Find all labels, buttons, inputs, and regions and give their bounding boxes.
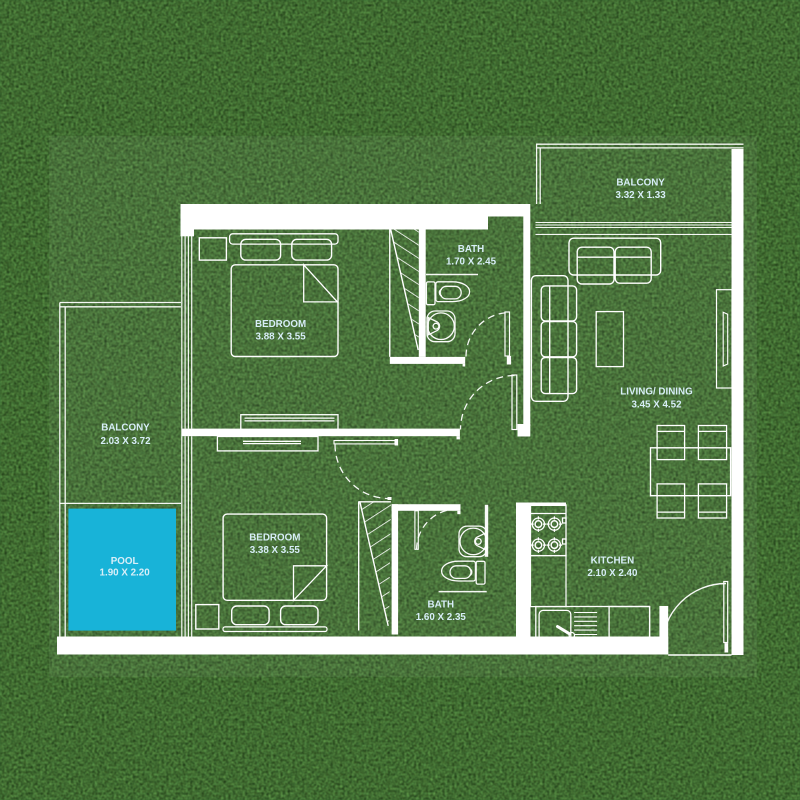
svg-text:3.45 X 4.52: 3.45 X 4.52 — [631, 400, 682, 411]
svg-text:BALCONY: BALCONY — [616, 178, 665, 189]
svg-text:2.10 X 2.40: 2.10 X 2.40 — [587, 568, 638, 579]
svg-text:BEDROOM: BEDROOM — [255, 319, 306, 330]
svg-text:BATH: BATH — [428, 600, 454, 611]
svg-text:BATH: BATH — [458, 244, 484, 255]
svg-text:KITCHEN: KITCHEN — [591, 556, 635, 567]
svg-text:BALCONY: BALCONY — [101, 423, 150, 434]
svg-text:BEDROOM: BEDROOM — [249, 533, 300, 544]
svg-text:LIVING/ DINING: LIVING/ DINING — [620, 387, 693, 398]
svg-text:2.03 X 3.72: 2.03 X 3.72 — [100, 436, 151, 447]
svg-text:3.32 X 1.33: 3.32 X 1.33 — [616, 190, 667, 201]
svg-text:3.38 X 3.55: 3.38 X 3.55 — [250, 545, 301, 556]
svg-text:1.70 X 2.45: 1.70 X 2.45 — [446, 257, 497, 268]
svg-text:3.88 X 3.55: 3.88 X 3.55 — [256, 332, 307, 343]
svg-text:POOL: POOL — [111, 556, 139, 567]
svg-text:1.90 X 2.20: 1.90 X 2.20 — [100, 568, 151, 579]
svg-text:1.60 X 2.35: 1.60 X 2.35 — [416, 612, 467, 623]
